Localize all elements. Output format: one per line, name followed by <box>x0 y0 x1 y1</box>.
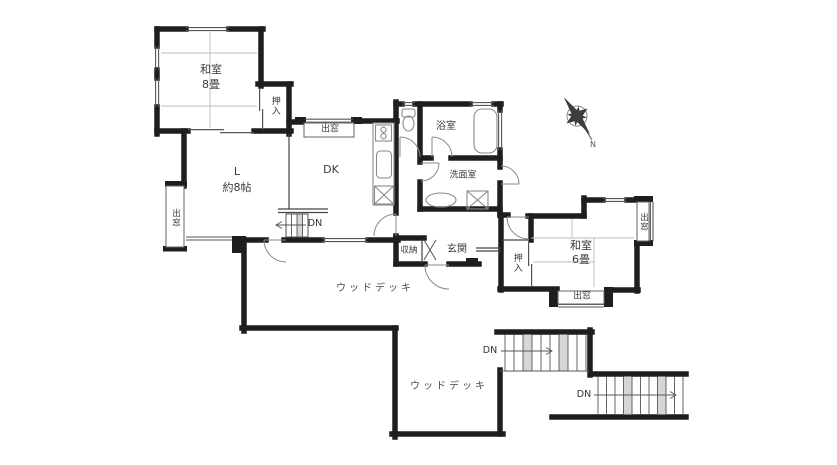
room-label-storage: 収納 <box>400 247 417 256</box>
closet-east-label: 押入 <box>511 253 520 273</box>
compass-north-label: N <box>590 141 596 149</box>
dn-label-lower-stairs: DN <box>577 390 591 400</box>
wall-piers <box>163 117 653 307</box>
stairs-upper <box>500 335 589 372</box>
room-label-japanese8-name: 和室 <box>200 64 222 76</box>
wood-deck-label-upper: ウッドデッキ <box>336 284 414 295</box>
bay-window-label-room6-east: 出窓 <box>639 213 648 232</box>
bay-window-label-living: 出窓 <box>171 209 180 228</box>
room-label-living: L <box>234 166 240 178</box>
room-label-bathroom: 浴室 <box>436 122 456 133</box>
wood-deck-label-lower: ウッドデッキ <box>410 382 488 393</box>
compass-icon <box>552 89 602 143</box>
room-label-japanese6-size: 6畳 <box>572 254 590 266</box>
washbasin-icon <box>426 193 456 207</box>
bathtub-icon <box>474 109 497 153</box>
room-label-japanese6-name: 和室 <box>570 240 592 252</box>
closet-north-label: 押入 <box>269 96 278 116</box>
room-label-entrance: 玄関 <box>447 245 467 256</box>
bay-window-label-dk: 出窓 <box>321 125 339 134</box>
stairs-lower <box>594 377 683 416</box>
toilet-icon <box>402 109 415 131</box>
room-label-japanese8-size: 8畳 <box>202 79 220 91</box>
walls <box>157 29 686 437</box>
stairs-interior <box>276 214 308 237</box>
floorplan-drawing <box>0 0 837 465</box>
room-label-living-size: 約8帖 <box>223 182 252 194</box>
room-label-dk: DK <box>323 164 339 176</box>
bay-window-label-room6-south: 出窓 <box>573 292 591 301</box>
room-label-washroom: 洗面室 <box>449 171 476 180</box>
dn-label-interior: DN <box>308 219 322 229</box>
dn-label-upper-stairs: DN <box>483 346 497 356</box>
floorplan: 和室 8畳 押入 L 約8帖 DK 浴室 洗面室 収納 玄関 押入 和室 6畳 … <box>0 0 837 465</box>
